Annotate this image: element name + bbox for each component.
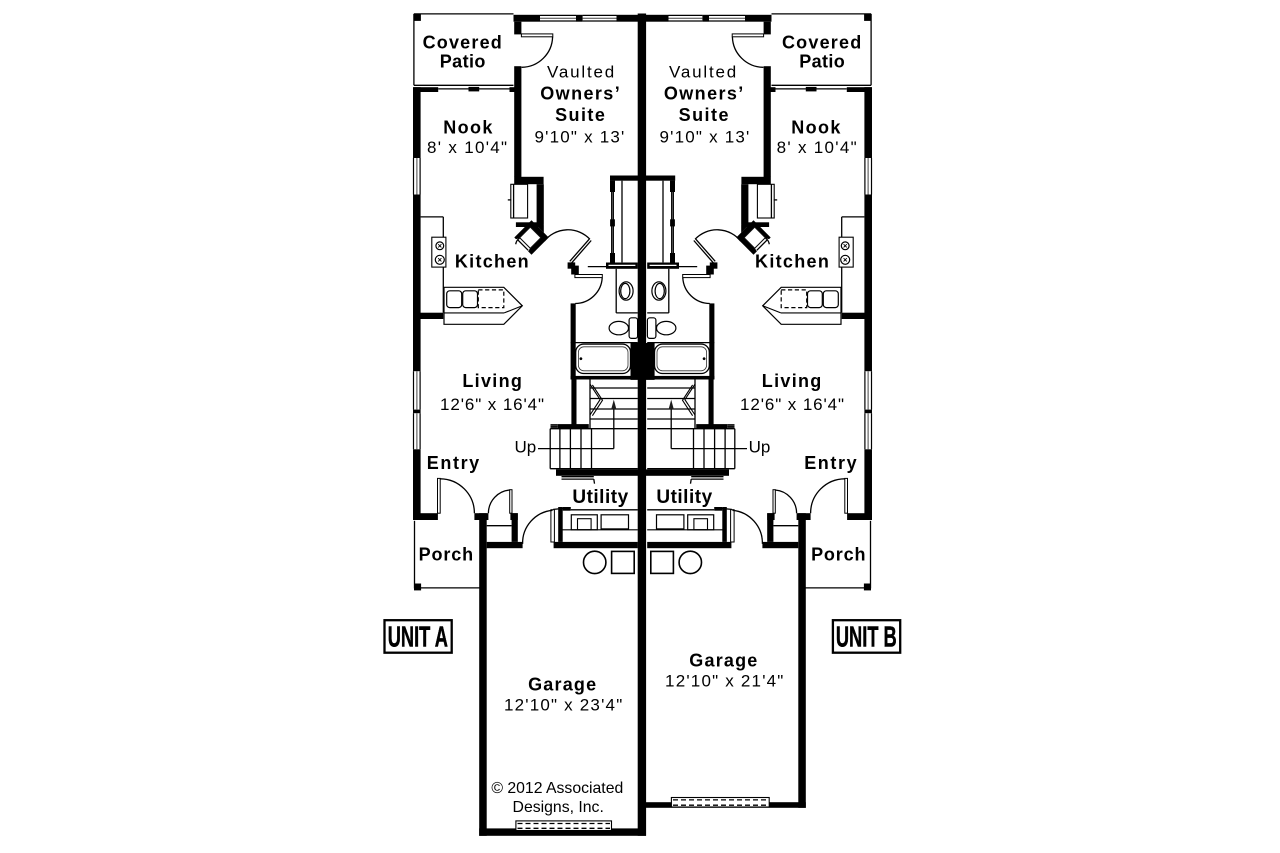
- svg-text:Entry: Entry: [804, 453, 858, 473]
- svg-text:© 2012 Associated: © 2012 Associated: [491, 780, 623, 797]
- svg-text:Covered: Covered: [782, 32, 862, 52]
- svg-text:Utility: Utility: [656, 487, 712, 508]
- svg-text:Patio: Patio: [440, 52, 486, 72]
- svg-text:Living: Living: [762, 371, 823, 391]
- svg-text:Kitchen: Kitchen: [455, 252, 530, 272]
- svg-text:Suite: Suite: [555, 105, 606, 125]
- svg-text:Garage: Garage: [528, 674, 597, 694]
- svg-text:12'6" x 16'4": 12'6" x 16'4": [740, 395, 845, 414]
- svg-text:Garage: Garage: [689, 650, 758, 670]
- svg-text:Covered: Covered: [423, 32, 503, 52]
- svg-text:Utility: Utility: [572, 487, 628, 508]
- svg-text:Porch: Porch: [419, 544, 474, 564]
- svg-text:Kitchen: Kitchen: [755, 252, 830, 272]
- svg-text:Porch: Porch: [811, 544, 866, 564]
- svg-text:Up: Up: [749, 437, 771, 456]
- svg-text:8' x 10'4": 8' x 10'4": [777, 138, 858, 157]
- svg-text:Owners’: Owners’: [664, 83, 745, 103]
- svg-text:Patio: Patio: [799, 52, 845, 72]
- svg-text:UNIT A: UNIT A: [388, 621, 448, 653]
- svg-text:Nook: Nook: [443, 118, 494, 138]
- svg-text:UNIT B: UNIT B: [836, 621, 897, 653]
- svg-text:Owners’: Owners’: [540, 83, 621, 103]
- svg-text:12'6" x 16'4": 12'6" x 16'4": [440, 395, 545, 414]
- svg-text:8' x 10'4": 8' x 10'4": [427, 138, 508, 157]
- svg-text:Entry: Entry: [427, 453, 481, 473]
- svg-text:Vaulted: Vaulted: [547, 63, 616, 82]
- svg-text:Living: Living: [462, 371, 523, 391]
- svg-text:Designs, Inc.: Designs, Inc.: [513, 799, 604, 816]
- svg-text:9'10" x 13': 9'10" x 13': [535, 128, 626, 147]
- svg-text:Up: Up: [515, 437, 537, 456]
- svg-text:9'10" x 13': 9'10" x 13': [660, 128, 751, 147]
- svg-text:Suite: Suite: [679, 105, 730, 125]
- svg-text:Vaulted: Vaulted: [669, 63, 738, 82]
- svg-text:12'10" x 21'4": 12'10" x 21'4": [665, 671, 785, 690]
- svg-text:12'10" x 23'4": 12'10" x 23'4": [504, 695, 624, 714]
- svg-text:Nook: Nook: [791, 118, 842, 138]
